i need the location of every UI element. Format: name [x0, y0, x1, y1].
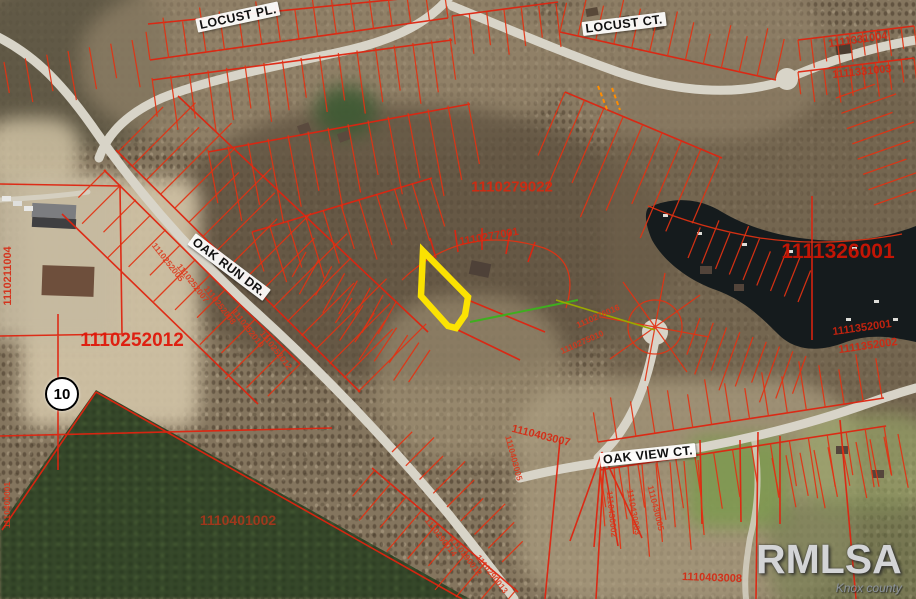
street-name-label: LOCUST PL. — [195, 1, 280, 32]
parcel-number-label: 1110430002 — [605, 490, 620, 537]
parcel-number-label: 1110276016 — [575, 302, 621, 330]
parcel-number-label: 1110403005 — [503, 434, 525, 481]
aerial-parcel-map[interactable]: 1110279022111025201211113260011110401002… — [0, 0, 916, 599]
parcel-number-label: 1110430005 — [646, 484, 667, 531]
parcel-number-label: 1111331004 — [828, 30, 888, 50]
parcel-number-label: 1110252008 — [202, 284, 238, 327]
parcel-number-label: 1110252007 — [175, 262, 211, 305]
watermark-region-label: Knox county — [756, 582, 902, 594]
parcel-number-label: 1110252010 — [230, 307, 266, 350]
parcel-number-label: 1110401002 — [200, 512, 276, 528]
parcel-number-label: 1110279022 — [471, 179, 553, 196]
parcel-number-label: 1111331003 — [832, 63, 892, 81]
parcel-number-label: 1110252012 — [258, 329, 294, 372]
parcel-number-label: 1110277001 — [458, 226, 519, 248]
parcel-number-label: 1110403008 — [682, 571, 742, 585]
parcel-number-label: 1110400001 — [2, 482, 12, 528]
rmlsa-logo: RMLSA — [756, 536, 902, 582]
watermark: RMLSA Knox county — [756, 539, 902, 594]
street-name-label: OAK VIEW CT. — [599, 443, 696, 467]
parcel-number-label: 1110430003 — [625, 488, 643, 535]
map-labels-layer: 1110279022111025201211113260011110401002… — [0, 0, 916, 599]
parcel-number-label: 1110403007 — [510, 423, 571, 449]
parcel-number-label: 1111352001 — [832, 318, 892, 338]
parcel-number-label: 1110252012 — [80, 330, 184, 352]
parcel-number-label: 1111326001 — [781, 240, 894, 264]
parcel-number-label: 1110211004 — [2, 246, 14, 305]
parcel-number-label: 1110275010 — [559, 328, 605, 356]
route-number: 10 — [54, 386, 71, 403]
route-shield: 10 — [45, 377, 79, 411]
street-name-label: LOCUST CT. — [582, 12, 667, 36]
parcel-number-label: 1111352002 — [838, 336, 898, 356]
